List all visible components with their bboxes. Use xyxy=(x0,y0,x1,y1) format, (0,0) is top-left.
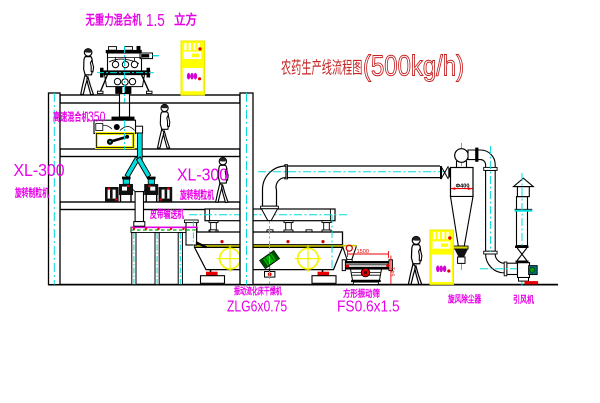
svg-text:FS0.6x1.5: FS0.6x1.5 xyxy=(337,298,400,316)
svg-text:高速混合机: 高速混合机 xyxy=(53,110,89,123)
svg-text:ZLG6x0.75: ZLG6x0.75 xyxy=(227,298,287,316)
svg-text:农药生产线流程图: 农药生产线流程图 xyxy=(281,58,362,77)
svg-text:旋风除尘器: 旋风除尘器 xyxy=(447,293,482,305)
svg-text:1.5: 1.5 xyxy=(146,11,165,30)
svg-text:1500: 1500 xyxy=(357,249,369,255)
svg-text:541: 541 xyxy=(390,267,396,276)
svg-text:XL-300: XL-300 xyxy=(177,165,228,185)
svg-text:旋转制粒机: 旋转制粒机 xyxy=(179,188,214,201)
svg-text:无重力混合机: 无重力混合机 xyxy=(85,12,142,28)
svg-text:皮带输送机: 皮带输送机 xyxy=(149,207,184,220)
svg-text:(500kg/h): (500kg/h) xyxy=(363,49,464,82)
svg-text:Φ400: Φ400 xyxy=(456,183,470,189)
svg-text:引风机: 引风机 xyxy=(513,294,535,305)
svg-text:350: 350 xyxy=(88,109,105,125)
svg-text:立方: 立方 xyxy=(174,12,197,28)
svg-text:旋转制粒机: 旋转制粒机 xyxy=(14,186,49,199)
svg-text:XL-300: XL-300 xyxy=(14,160,65,180)
svg-text:振动流化床干燥机: 振动流化床干燥机 xyxy=(234,285,282,297)
